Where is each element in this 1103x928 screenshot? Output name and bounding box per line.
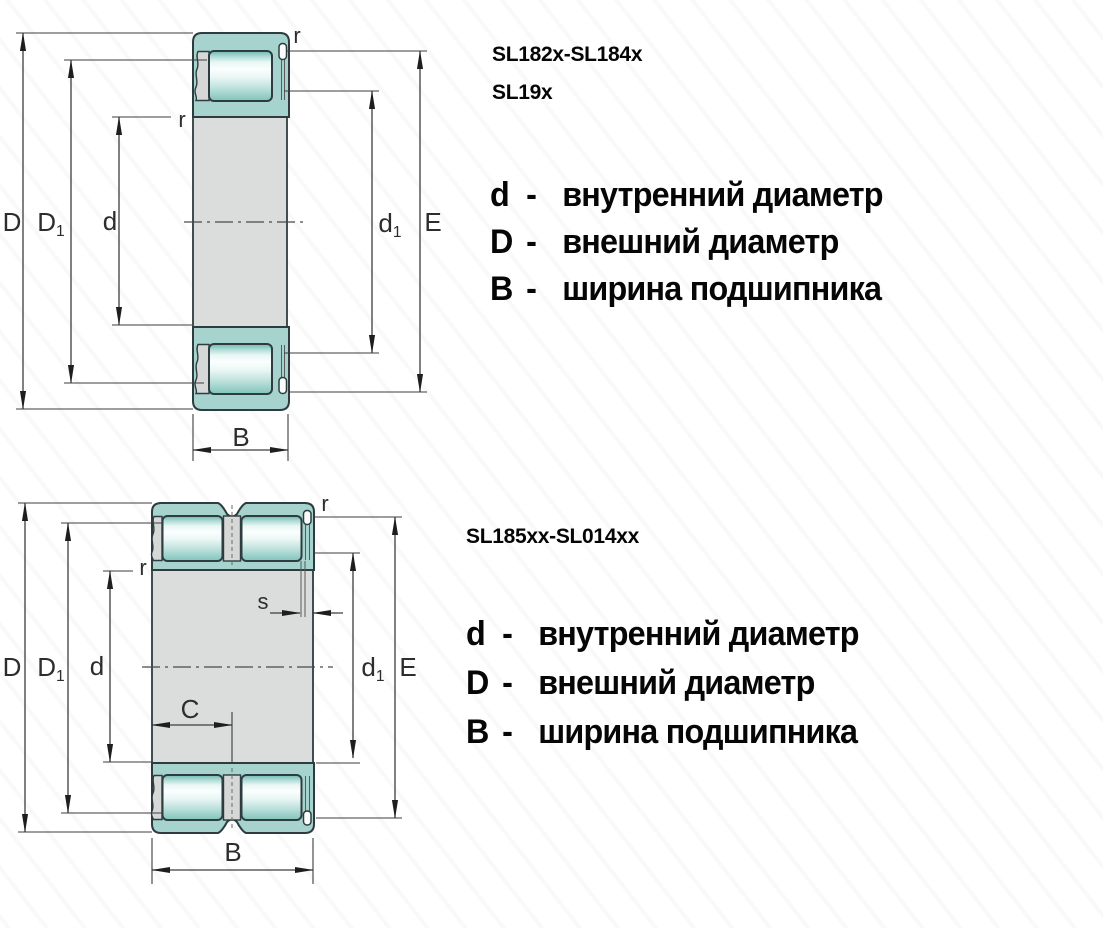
legend-dash: - <box>526 270 562 309</box>
top-lower-roller <box>209 344 272 394</box>
legend-dash: - <box>526 176 562 215</box>
legend-text: ширина подшипника <box>562 270 881 309</box>
top-series-line-1: SL182x-SL184x <box>492 36 642 74</box>
bottom-series-line-1: SL185xx-SL014xx <box>466 524 639 549</box>
bottom-dim-label-d1-sub: 1 <box>376 668 385 685</box>
top-dim-label-E: E <box>424 209 441 235</box>
bottom-dim-label-D1: D1 <box>37 654 64 680</box>
top-dim-label-d1: d1 <box>378 210 401 236</box>
top-lower-shaft-break <box>195 345 209 394</box>
bottom-upper-roller-left <box>163 516 223 561</box>
top-upper-roller <box>209 51 272 101</box>
bearing-cross-section-drawing <box>0 0 1103 928</box>
bottom-bearing-figure <box>18 503 402 884</box>
bottom-dim-label-d1: d1 <box>361 654 384 680</box>
top-dim-label-d: d <box>103 208 117 234</box>
bottom-lower-snap-ring <box>304 811 312 825</box>
legend-text: ширина подшипника <box>538 713 857 752</box>
bottom-dim-label-C: C <box>181 696 200 722</box>
bottom-dim-label-D: D <box>3 654 22 680</box>
legend-row-d: d - внутренний диаметр <box>490 175 883 215</box>
bottom-dim-label-s: s <box>258 591 269 613</box>
top-bearing-figure <box>16 33 427 461</box>
top-legend: d - внутренний диаметр D - внешний диаме… <box>490 175 903 316</box>
legend-symbol: d <box>490 176 526 215</box>
bottom-series-title: SL185xx-SL014xx <box>466 524 639 549</box>
legend-dash: - <box>526 223 562 262</box>
top-dim-label-d1-sub: 1 <box>393 224 402 241</box>
top-upper-shaft-break <box>195 52 209 101</box>
bottom-dim-label-E: E <box>399 654 416 680</box>
bottom-legend: d - внутренний диаметр D - внешний диаме… <box>466 614 879 761</box>
top-dim-label-d1-base: d <box>378 208 392 238</box>
top-dim-label-r-outer: r <box>293 25 300 47</box>
legend-symbol: B <box>466 713 502 752</box>
legend-text: внутренний диаметр <box>562 176 883 215</box>
legend-row-D: D - внешний диаметр <box>466 663 859 703</box>
bottom-dim-label-r-outer: r <box>321 493 328 515</box>
legend-text: внутренний диаметр <box>538 615 859 654</box>
legend-row-d: d - внутренний диаметр <box>466 614 859 654</box>
bottom-lower-roller-left <box>163 775 223 820</box>
bottom-upper-snap-ring <box>304 511 312 525</box>
top-dim-label-D1: D1 <box>37 209 64 235</box>
legend-symbol: D <box>490 223 526 262</box>
bottom-dim-label-D1-base: D <box>37 652 56 682</box>
legend-row-B: B - ширина подшипника <box>466 712 859 752</box>
top-upper-snap-ring <box>279 44 287 60</box>
legend-row-B: B - ширина подшипника <box>490 269 883 309</box>
bearing-dimension-diagram-page: D D1 d r r d1 E B D D1 d r r s C d1 E B … <box>0 0 1103 928</box>
bottom-dim-label-d: d <box>90 653 104 679</box>
bottom-dim-label-r-inner: r <box>139 557 146 579</box>
legend-dash: - <box>502 713 538 752</box>
top-series-title: SL182x-SL184x SL19x <box>492 36 642 112</box>
top-dim-label-D1-base: D <box>37 207 56 237</box>
legend-symbol: B <box>490 270 526 309</box>
bottom-dim-label-D1-sub: 1 <box>56 668 65 685</box>
legend-text: внешний диаметр <box>562 223 838 262</box>
bottom-dim-label-B: B <box>224 839 241 865</box>
legend-symbol: D <box>466 664 502 703</box>
top-series-line-2: SL19x <box>492 74 642 112</box>
top-dim-label-D: D <box>3 209 22 235</box>
top-dim-label-D1-sub: 1 <box>56 223 65 240</box>
legend-dash: - <box>502 664 538 703</box>
legend-text: внешний диаметр <box>538 664 814 703</box>
bottom-lower-roller-right <box>242 775 302 820</box>
top-lower-snap-ring <box>279 378 287 394</box>
top-dim-label-r-inner: r <box>178 109 185 131</box>
legend-symbol: d <box>466 615 502 654</box>
bottom-dim-label-d1-base: d <box>361 652 375 682</box>
bottom-upper-roller-right <box>242 516 302 561</box>
legend-dash: - <box>502 615 538 654</box>
legend-row-D: D - внешний диаметр <box>490 222 883 262</box>
top-dim-label-B: B <box>232 424 249 450</box>
